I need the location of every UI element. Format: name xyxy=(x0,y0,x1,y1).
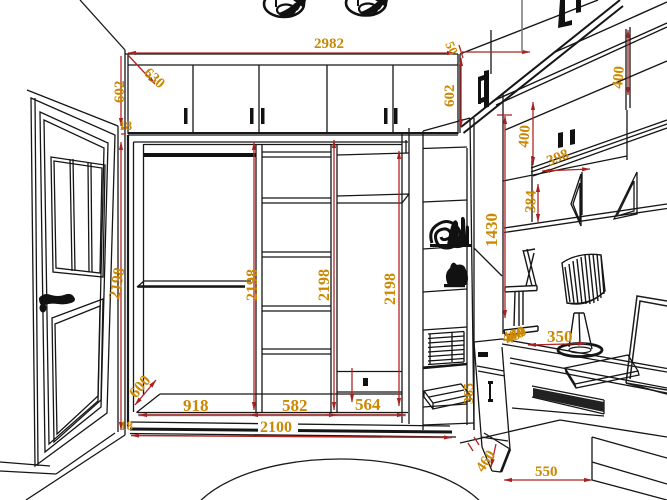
svg-text:2100: 2100 xyxy=(260,419,292,436)
svg-text:918: 918 xyxy=(183,396,209,415)
svg-text:564: 564 xyxy=(355,395,381,414)
svg-text:365: 365 xyxy=(462,383,477,404)
svg-text:384: 384 xyxy=(523,190,540,214)
svg-text:2198: 2198 xyxy=(316,269,333,301)
svg-text:602: 602 xyxy=(112,81,128,104)
svg-text:400: 400 xyxy=(610,66,628,90)
svg-text:398: 398 xyxy=(545,146,572,169)
svg-text:2198: 2198 xyxy=(382,273,399,305)
svg-text:602: 602 xyxy=(442,85,458,108)
svg-text:18: 18 xyxy=(119,118,133,133)
svg-text:600: 600 xyxy=(126,372,154,401)
svg-text:350: 350 xyxy=(547,327,573,346)
svg-text:630: 630 xyxy=(140,65,167,92)
svg-text:2982: 2982 xyxy=(314,36,344,52)
svg-text:550: 550 xyxy=(535,464,558,480)
svg-text:582: 582 xyxy=(282,396,308,415)
svg-text:18: 18 xyxy=(120,418,134,433)
svg-text:1430: 1430 xyxy=(482,213,501,247)
svg-text:2198: 2198 xyxy=(244,269,261,301)
svg-text:400: 400 xyxy=(516,125,534,149)
